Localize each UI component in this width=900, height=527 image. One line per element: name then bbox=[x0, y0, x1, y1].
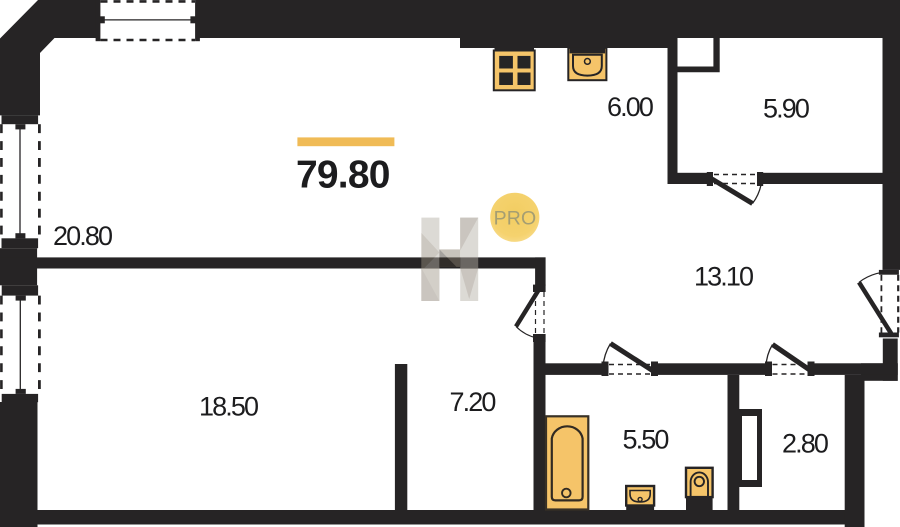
svg-text:7.20: 7.20 bbox=[450, 387, 496, 417]
svg-text:20.80: 20.80 bbox=[53, 221, 112, 251]
svg-text:5.50: 5.50 bbox=[623, 425, 669, 455]
svg-text:79.80: 79.80 bbox=[296, 154, 390, 197]
svg-text:18.50: 18.50 bbox=[199, 392, 258, 422]
svg-text:2.80: 2.80 bbox=[782, 429, 828, 459]
svg-text:13.10: 13.10 bbox=[694, 262, 753, 292]
svg-text:5.90: 5.90 bbox=[763, 94, 809, 124]
svg-text:PRO: PRO bbox=[494, 208, 537, 230]
svg-text:6.00: 6.00 bbox=[607, 92, 653, 122]
